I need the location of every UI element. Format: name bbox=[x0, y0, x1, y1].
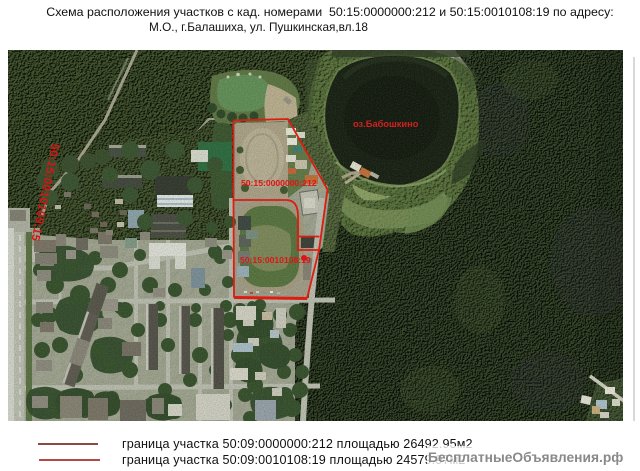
svg-text:50:15:0010108:19: 50:15:0010108:19 bbox=[240, 255, 311, 265]
svg-text:50:15:0000000:212: 50:15:0000000:212 bbox=[241, 178, 317, 188]
svg-text:оз.Бабошкино: оз.Бабошкино bbox=[353, 119, 419, 129]
